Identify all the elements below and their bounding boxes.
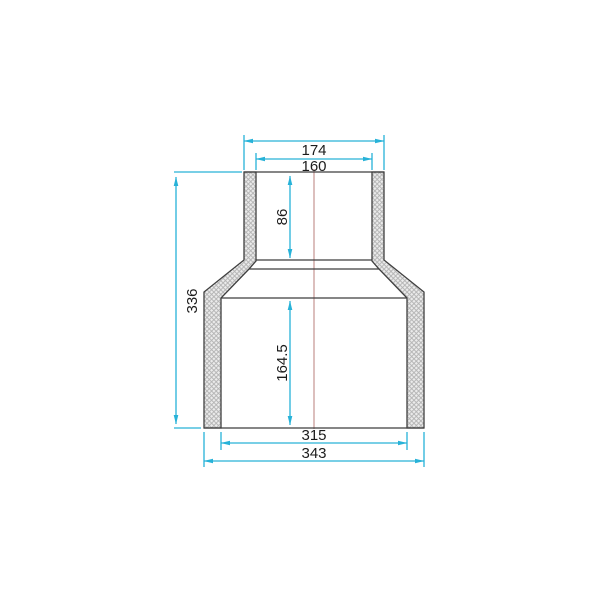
dim-overall-height-label: 336 bbox=[184, 288, 201, 313]
drawing-canvas: 174 160 86 336 164.5 bbox=[0, 0, 603, 603]
dim-upper-socket-depth: 86 bbox=[274, 176, 291, 258]
dim-top-outer-label: 174 bbox=[301, 142, 326, 159]
dim-top-inner-label: 160 bbox=[301, 158, 326, 175]
hatched-wall-right bbox=[372, 172, 424, 428]
dim-lower-socket-depth: 164.5 bbox=[274, 301, 291, 425]
dim-bottom-inner-label: 315 bbox=[301, 427, 326, 444]
dim-lower-socket-depth-label: 164.5 bbox=[274, 344, 291, 382]
reducer-section-drawing: 174 160 86 336 164.5 bbox=[0, 0, 603, 603]
hatched-wall-left bbox=[204, 172, 256, 428]
dim-upper-socket-depth-label: 86 bbox=[274, 209, 291, 226]
dim-bottom-outer-label: 343 bbox=[301, 445, 326, 462]
